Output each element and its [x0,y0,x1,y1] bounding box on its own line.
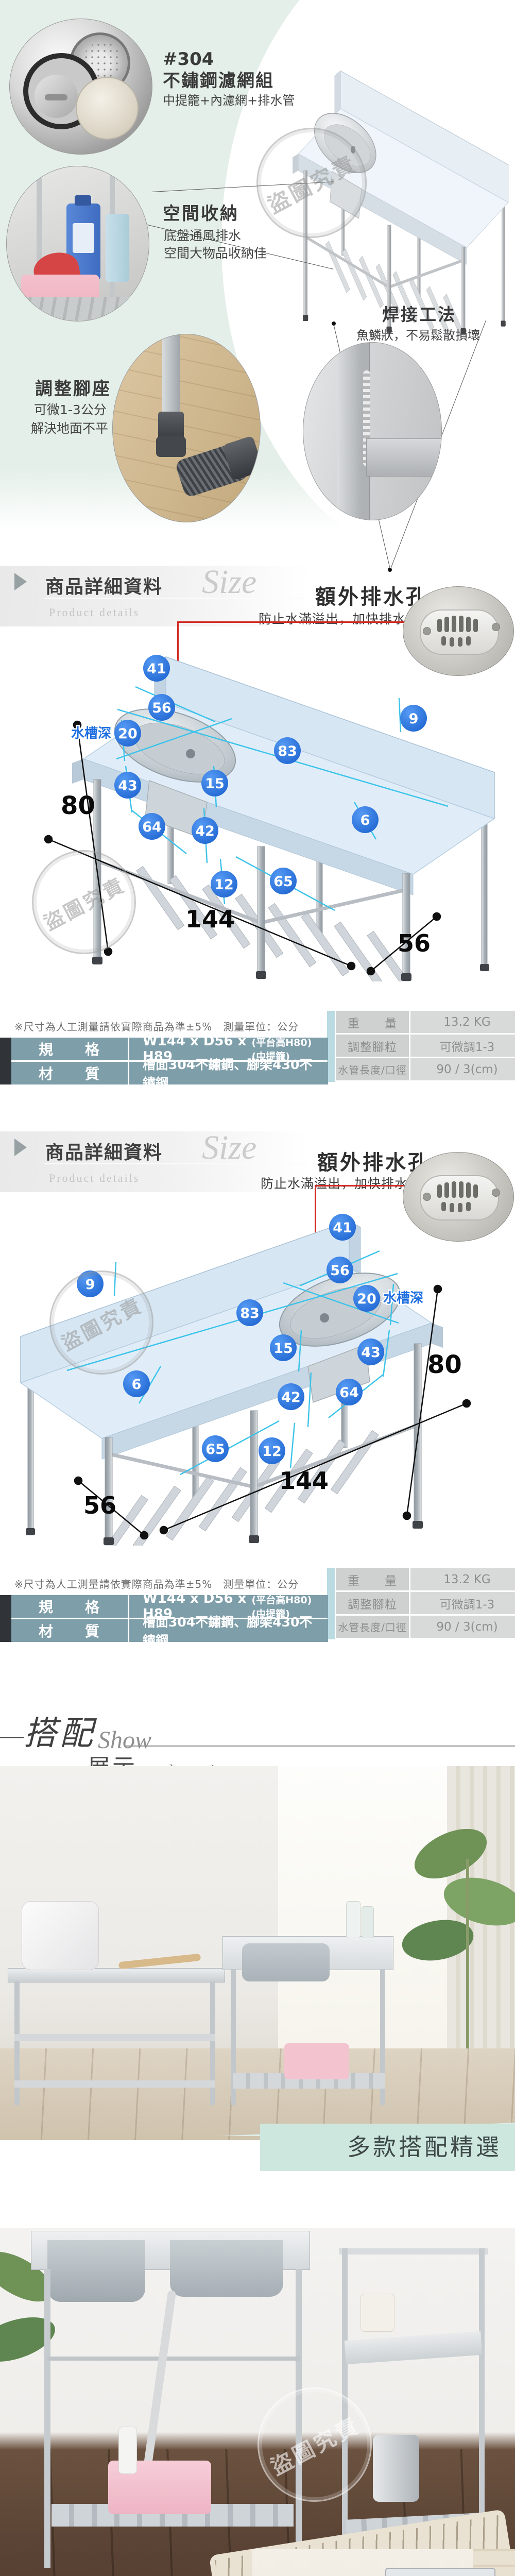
mix-title-zh: 搭配 [24,1715,96,1753]
steel-leg [162,334,180,416]
svg-text:56: 56 [152,700,171,716]
screw-icon [423,627,431,635]
spec-left-table: 規 格 W144 x D56 x H89(平台高H80) (中提籠) 材 質 槽… [11,1038,328,1084]
mug [360,2294,394,2332]
drain-slot [437,1184,442,1198]
svg-text:20: 20 [357,1291,376,1307]
work-table [8,1968,225,1982]
drain-slot [466,1182,471,1198]
svg-text:83: 83 [240,1306,260,1321]
size-header-arrow-icon [14,573,27,590]
spec-note: ※尺寸為人工測量請依實際商品為準±5% 測量單位：公分 [14,1021,299,1033]
drain-slot [473,1184,478,1198]
feet-photo [112,334,261,522]
spec-note: ※尺寸為人工測量請依實際商品為準±5% 測量單位：公分 [14,1579,299,1590]
svg-text:9: 9 [409,711,419,727]
inset-photo-single-sink [252,2549,515,2576]
anti-theft-watermark: 盜圖究責 [32,850,136,954]
svg-text:144: 144 [185,905,235,933]
svg-text:水槽深: 水槽深 [71,726,111,741]
mix-banner: 多款搭配精選 [260,2124,515,2171]
svg-text:56: 56 [330,1263,350,1279]
adjuster-foot [156,436,186,457]
screw-icon [492,1189,500,1197]
spec-table-block: ※尺寸為人工測量請依實際商品為準±5% 測量單位：公分 重 量13.2 KG 調… [0,1008,515,1090]
lifestyle-photo-kitchen [0,1766,515,2140]
svg-text:12: 12 [262,1444,282,1460]
table-row: 重 量13.2 KG [336,1011,515,1033]
spec-left-accent [0,1595,11,1642]
soap-bottle [362,1906,374,1938]
svg-text:65: 65 [205,1442,225,1458]
size-header-title: 商品詳細資料 [45,572,163,599]
spec-left-table: 規 格 W144 x D56 x H89(平台高H80) (中提籠) 材 質 槽… [11,1595,328,1642]
product-page: #304 不鏽鋼濾網組 中提籠+內濾網+排水管 空間收納 底盤通風排水 空間大物… [0,0,515,2576]
drain-annotation-line [178,621,404,623]
size-header-word: Size [202,563,256,602]
svg-text:42: 42 [195,823,215,839]
air-fryer [22,1901,99,1970]
pink-basket [284,2043,349,2079]
table-leg [44,2269,50,2568]
svg-text:65: 65 [273,874,293,890]
adjuster-collar [158,412,184,439]
anti-theft-watermark: 盜圖究責 [256,128,367,238]
feature2-line1: 底盤通風排水 [164,229,241,244]
weld-photo [303,342,442,520]
svg-text:64: 64 [339,1385,359,1401]
svg-text:80: 80 [427,1350,462,1379]
rolling-pin [118,1954,201,1970]
spec-right-table: 重 量13.2 KG 調整腳粒可微調1-3 水管長度/口徑90 / 3(cm) [336,1568,515,1639]
drain-slot [444,617,449,632]
anti-theft-watermark: 盜圖究責 [257,2387,372,2502]
feature4-subtitle: 魚鱗狀，不易鬆散損壞 [356,329,480,343]
bottle-cap [75,195,91,206]
svg-text:6: 6 [360,812,370,828]
drain-slot [473,619,478,632]
feature1-code: #304 [163,49,214,70]
bottle-label [73,223,94,253]
drain-slot [437,619,442,632]
size-header-subtitle: Product details [49,606,140,619]
spec-left-accent [0,1038,11,1084]
drain-slot [459,616,463,632]
feature2-line2: 空間大物品收納佳 [164,246,267,261]
platform-section: 盜圖究責 水槽+平台 シンク プラットフォーム 各種搭配組合皆適合 [0,2228,515,2576]
table-row: 水管長度/口徑90 / 3(cm) [336,1058,515,1080]
svg-text:12: 12 [214,877,234,893]
feature3-line1: 可微1-3公分 [34,403,107,418]
drain-slot [452,616,456,632]
mix-banner-text: 多款搭配精選 [347,2134,502,2161]
sink-bowl [170,2240,283,2297]
strainer-photo [9,19,152,155]
storage-photo [6,166,149,321]
horizontal-bar [366,438,442,477]
features-section: #304 不鏽鋼濾網組 中提籠+內濾網+排水管 空間收納 底盤通風排水 空間大物… [0,0,515,531]
table-row: 調整腳粒可微調1-3 [336,1035,515,1057]
svg-text:43: 43 [361,1345,381,1361]
drain-annotation-line [315,1185,404,1187]
svg-text:64: 64 [142,819,162,835]
table-shelf [14,2034,215,2041]
shelf-board [345,2331,483,2364]
feature1-subtitle: 中提籠+內濾網+排水管 [163,94,295,108]
table-row: 材 質 槽面304不鏽鋼、腳架430不鏽鋼 [11,1062,328,1084]
size-header-arrow-icon [14,1139,27,1156]
svg-text:20: 20 [118,726,138,742]
size-header-subtitle: Product details [49,1172,140,1185]
table-row: 材 質 槽面304不鏽鋼、腳架430不鏽鋼 [11,1619,328,1642]
inner-cup [76,77,139,140]
svg-text:41: 41 [333,1220,352,1236]
size-header-underline [44,1163,304,1164]
size-section-1: 商品詳細資料 Size Product details 額外排水孔 防止水滿溢出… [0,562,515,1128]
drain-callout-title: 額外排水孔 [315,580,428,610]
mix-section: 搭配 Show 展示 product mix [0,1700,515,2228]
callout-dot [332,321,336,326]
sink-bowl [47,2240,145,2302]
feature4-title: 焊接工法 [382,305,456,325]
dimension-diagram-right-sink: 80 144 56 水槽深 41 56 9 20 83 43 15 64 42 … [15,1200,500,1546]
svg-text:42: 42 [281,1389,301,1405]
feature3-line2: 解決地面不平 [31,421,108,436]
drain-slot [444,1182,449,1198]
svg-text:41: 41 [147,661,166,677]
sink-bowl [242,1943,330,1981]
single-sink-body [385,2568,495,2576]
screw-icon [423,1193,431,1201]
soap-bottle [346,1901,360,1938]
svg-text:56: 56 [83,1492,116,1519]
table-row: 水管長度/口徑90 / 3(cm) [336,1616,515,1638]
feature3-title: 調整腳座 [35,379,111,399]
lifestyle-photo-laundry: 盜圖究責 [0,2228,515,2576]
table-row: 調整腳粒可微調1-3 [336,1592,515,1614]
svg-text:水槽深: 水槽深 [383,1291,423,1306]
screw-icon [492,623,500,631]
feature1-title: 不鏽鋼濾網組 [163,71,274,91]
shelf-slats [7,297,149,321]
svg-text:83: 83 [278,743,297,759]
lid-handle [45,94,67,100]
drain-slot [466,617,471,632]
svg-text:56: 56 [398,929,431,957]
svg-text:15: 15 [205,776,225,792]
svg-text:144: 144 [279,1467,329,1495]
svg-text:6: 6 [132,1377,142,1393]
size-header-word: Size [202,1128,256,1167]
svg-text:80: 80 [61,791,95,820]
detergent-bottle-light [106,214,129,282]
drain-slot [459,1181,463,1198]
size-header-title: 商品詳細資料 [45,1138,163,1164]
drain-slot [452,1181,456,1198]
cross-rail [47,2357,300,2361]
spec-right-table: 重 量13.2 KG 調整腳粒可微調1-3 水管長度/口徑90 / 3(cm) [336,1011,515,1082]
header-line [126,1745,515,1747]
spec-table-block: ※尺寸為人工測量請依實際商品為準±5% 測量單位：公分 重 量13.2 KG 調… [0,1565,515,1648]
svg-text:43: 43 [118,778,138,794]
anti-theft-watermark: 盜圖究責 [49,1270,153,1375]
size-header-underline [44,598,304,599]
feature2-title: 空間收納 [163,204,239,224]
kettle [373,2435,419,2502]
table-shelf [14,2080,215,2088]
header-line [0,1737,24,1738]
plant-stem [466,1859,469,2075]
spray-bottle [118,2427,137,2474]
table-row: 重 量13.2 KG [336,1568,515,1590]
size-section-2: 商品詳細資料 Size Product details 額外排水孔 防止水滿溢出… [0,1127,515,1694]
side-shelf-unit [339,2248,488,2255]
svg-text:15: 15 [273,1341,293,1357]
plant-leaf [0,2309,61,2370]
mix-title-en: Show [98,1726,151,1754]
